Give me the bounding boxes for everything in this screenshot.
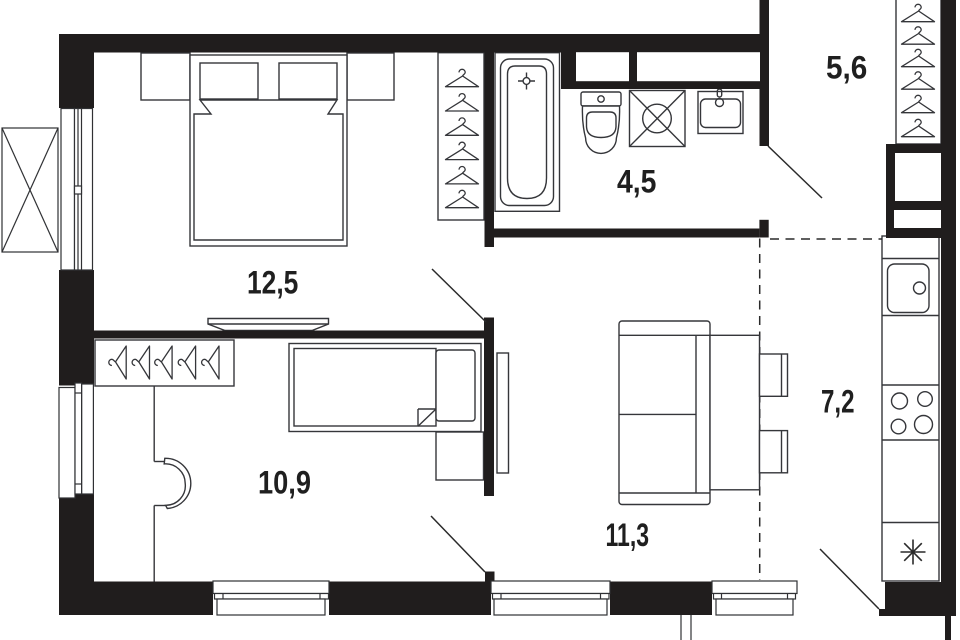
svg-text:12,5: 12,5: [247, 265, 298, 301]
svg-text:5,6: 5,6: [826, 50, 867, 86]
svg-text:10,9: 10,9: [258, 465, 311, 501]
svg-text:4,5: 4,5: [617, 164, 656, 200]
svg-text:11,3: 11,3: [606, 517, 650, 553]
svg-text:7,2: 7,2: [821, 384, 855, 420]
